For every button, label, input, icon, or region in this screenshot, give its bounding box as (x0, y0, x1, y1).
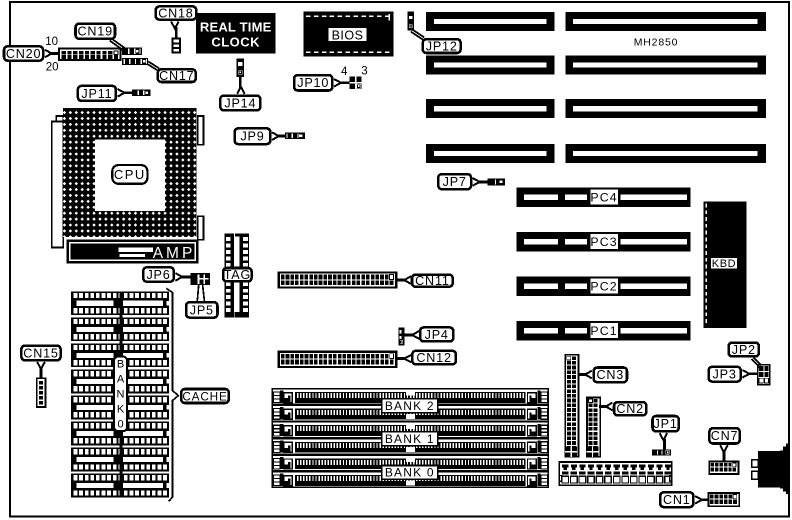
svg-text:JP6: JP6 (146, 268, 170, 282)
svg-text:CPU: CPU (114, 167, 146, 182)
svg-text:A: A (117, 374, 125, 386)
svg-text:JP1: JP1 (654, 417, 678, 431)
svg-text:CN17: CN17 (159, 69, 194, 83)
svg-text:MH2850: MH2850 (634, 36, 679, 48)
svg-text:JP9: JP9 (240, 130, 264, 144)
svg-text:JP10: JP10 (297, 76, 329, 90)
svg-text:PC1: PC1 (590, 324, 618, 338)
svg-text:CN2: CN2 (616, 402, 644, 416)
svg-text:PC3: PC3 (590, 235, 618, 249)
svg-text:CN3: CN3 (597, 368, 625, 382)
svg-text:JP4: JP4 (425, 328, 449, 342)
svg-text:JP3: JP3 (713, 368, 737, 382)
svg-text:10: 10 (45, 36, 58, 48)
svg-text:JP5: JP5 (190, 303, 214, 317)
svg-text:AMP: AMP (153, 245, 196, 262)
svg-text:JP7: JP7 (443, 175, 467, 189)
svg-text:KBD: KBD (712, 258, 736, 270)
svg-text:BANK 1: BANK 1 (385, 432, 435, 446)
svg-text:20: 20 (46, 62, 59, 74)
svg-text:JP14: JP14 (224, 96, 256, 110)
svg-text:CN12: CN12 (416, 351, 451, 365)
svg-text:CLOCK: CLOCK (211, 35, 260, 50)
svg-text:3: 3 (361, 66, 367, 78)
svg-text:PC4: PC4 (590, 191, 618, 205)
svg-text:CN11: CN11 (415, 274, 449, 288)
svg-text:CN7: CN7 (711, 429, 739, 443)
svg-text:B: B (117, 359, 124, 371)
svg-text:0: 0 (117, 419, 123, 431)
svg-text:BANK 2: BANK 2 (385, 399, 435, 413)
svg-text:JP12: JP12 (426, 40, 458, 54)
svg-text:N: N (117, 389, 125, 401)
svg-text:CACHE: CACHE (182, 389, 227, 403)
svg-text:JP2: JP2 (732, 343, 756, 357)
svg-text:TAG: TAG (224, 268, 251, 282)
svg-text:CN18: CN18 (158, 6, 193, 20)
svg-text:REAL TIME: REAL TIME (200, 20, 272, 35)
svg-text:JP11: JP11 (81, 87, 112, 101)
svg-text:4: 4 (341, 66, 348, 78)
svg-text:CN19: CN19 (77, 25, 112, 39)
svg-text:K: K (117, 404, 125, 416)
svg-text:PC2: PC2 (590, 280, 618, 294)
svg-text:BIOS: BIOS (332, 28, 364, 42)
svg-text:CN15: CN15 (23, 346, 58, 360)
svg-text:BANK 0: BANK 0 (385, 466, 435, 480)
svg-text:CN1: CN1 (663, 493, 691, 507)
svg-text:CN20: CN20 (6, 47, 41, 61)
